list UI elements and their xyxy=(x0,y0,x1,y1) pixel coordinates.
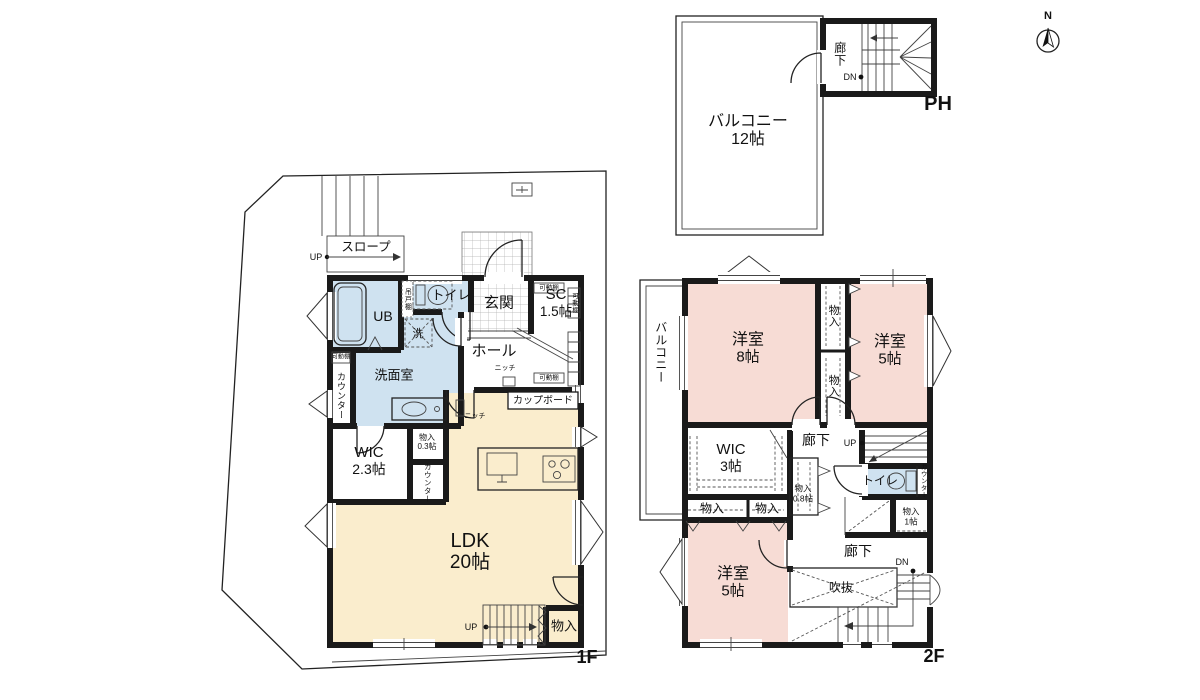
balcony2-label: バルコニー xyxy=(653,321,666,384)
counter-label-b: カウンター xyxy=(423,463,431,503)
counter-label-c: カウンター xyxy=(919,464,926,499)
storage1-size: 1帖 xyxy=(902,517,919,527)
wic1-name: WIC xyxy=(352,445,385,462)
slope-up-label: UP xyxy=(310,252,323,262)
ub-label: UB xyxy=(373,309,392,325)
storage03-label: 物入 0.3帖 xyxy=(417,434,436,452)
up2f-label: UP xyxy=(844,438,857,448)
sc-sliding-door xyxy=(513,328,573,362)
movable-shelf-right: 可動棚 xyxy=(570,293,577,314)
storage1f-label: 物入 xyxy=(551,620,577,635)
toilet1-label: トイレ xyxy=(431,289,470,304)
ph-balcony-label: バルコニー 12帖 xyxy=(708,113,788,149)
void-label: 吹抜 xyxy=(829,581,853,594)
corridor2b-label: 廊下 xyxy=(844,544,872,560)
floor-plan-drawing xyxy=(0,0,1200,700)
movable-shelf-bottom: 可動棚 xyxy=(539,374,559,381)
ph-corridor-label: 廊下 xyxy=(832,42,845,67)
north-label: N xyxy=(1044,10,1052,22)
movable-shelf-left: 可動棚 xyxy=(332,354,350,361)
wic1-label: WIC 2.3帖 xyxy=(352,445,385,477)
wic2-label: WIC 3帖 xyxy=(716,442,745,474)
hall-label: ホール xyxy=(471,344,516,361)
cupboard-label: カップボード xyxy=(513,395,573,406)
storage03-size: 0.3帖 xyxy=(417,443,436,452)
room8-label: 洋室 8帖 xyxy=(732,332,764,367)
niche-label-a: ニッチ xyxy=(495,365,516,373)
niche-hall xyxy=(503,377,515,386)
up1f-label: UP xyxy=(465,622,478,632)
room5b-size: 5帖 xyxy=(717,584,749,601)
slope-label: スロープ xyxy=(341,240,390,254)
room5a-size: 5帖 xyxy=(874,352,906,369)
floor2-void-stairs xyxy=(790,568,930,642)
entrance-label: 玄関 xyxy=(484,296,514,313)
washer-label: 洗 xyxy=(413,328,424,340)
closet-label-h2: 物入 xyxy=(755,502,779,515)
ph-tag: PH xyxy=(924,93,952,115)
floor2-tag: 2F xyxy=(923,646,944,666)
outdoor-faucet-icon xyxy=(512,183,532,196)
floor-plan-page: バルコニー 12帖 廊下 DN PH N スロープ UP UB 吊戸棚 洗 トイ… xyxy=(0,0,1200,700)
ldk-label: LDK 20帖 xyxy=(450,530,490,574)
movable-shelf-top: 可動棚 xyxy=(539,284,559,291)
compass-icon xyxy=(1037,28,1059,52)
ph-balcony-size: 12帖 xyxy=(708,131,788,149)
toilet2-label: トイレ xyxy=(862,474,898,487)
ph-stairwell xyxy=(791,21,934,94)
wic1-size: 2.3帖 xyxy=(352,462,385,478)
floor2-stairs-up xyxy=(860,431,927,462)
wic2-name: WIC xyxy=(716,442,745,459)
hanging-cabinet-label: 吊戸棚 xyxy=(404,288,412,311)
exterior-steps xyxy=(322,176,378,236)
counter-label-a: カウンター xyxy=(336,372,346,420)
room5a-label: 洋室 5帖 xyxy=(874,334,906,369)
niche-label-b: ニッチ xyxy=(465,413,486,421)
ldk-size: 20帖 xyxy=(450,553,490,574)
wic2-size: 3帖 xyxy=(716,459,745,475)
closet-label-v1: 物入 xyxy=(827,305,839,328)
closet-label-v2: 物入 xyxy=(827,375,839,398)
corridor2a-label: 廊下 xyxy=(802,433,830,449)
ph-balcony-name: バルコニー xyxy=(708,113,788,131)
slope-arrow xyxy=(325,253,401,261)
sc-size: 1.5帖 xyxy=(540,304,572,319)
bay-window-marker xyxy=(307,293,327,339)
washroom-label: 洗面室 xyxy=(374,369,413,384)
wic2-door-line xyxy=(770,430,787,458)
floor2-balcony xyxy=(640,280,682,520)
ph-door xyxy=(791,53,821,83)
room5a-name: 洋室 xyxy=(874,334,906,352)
ldk-name: LDK xyxy=(450,530,490,552)
closet-label-h1: 物入 xyxy=(700,502,724,515)
storage08-label: 物入 0.8帖 xyxy=(793,484,813,503)
room5b-name: 洋室 xyxy=(717,566,749,584)
storage1-label: 物入 1帖 xyxy=(902,507,919,526)
room5b-label: 洋室 5帖 xyxy=(717,566,749,601)
room8-size: 8帖 xyxy=(732,350,764,367)
dn2f-label: DN xyxy=(896,557,909,567)
room8-name: 洋室 xyxy=(732,332,764,350)
sc-label: SC 1.5帖 xyxy=(540,287,572,319)
storage08-size: 0.8帖 xyxy=(793,494,813,504)
ph-dn-label: DN xyxy=(844,72,857,82)
floor1-tag: 1F xyxy=(576,647,597,667)
